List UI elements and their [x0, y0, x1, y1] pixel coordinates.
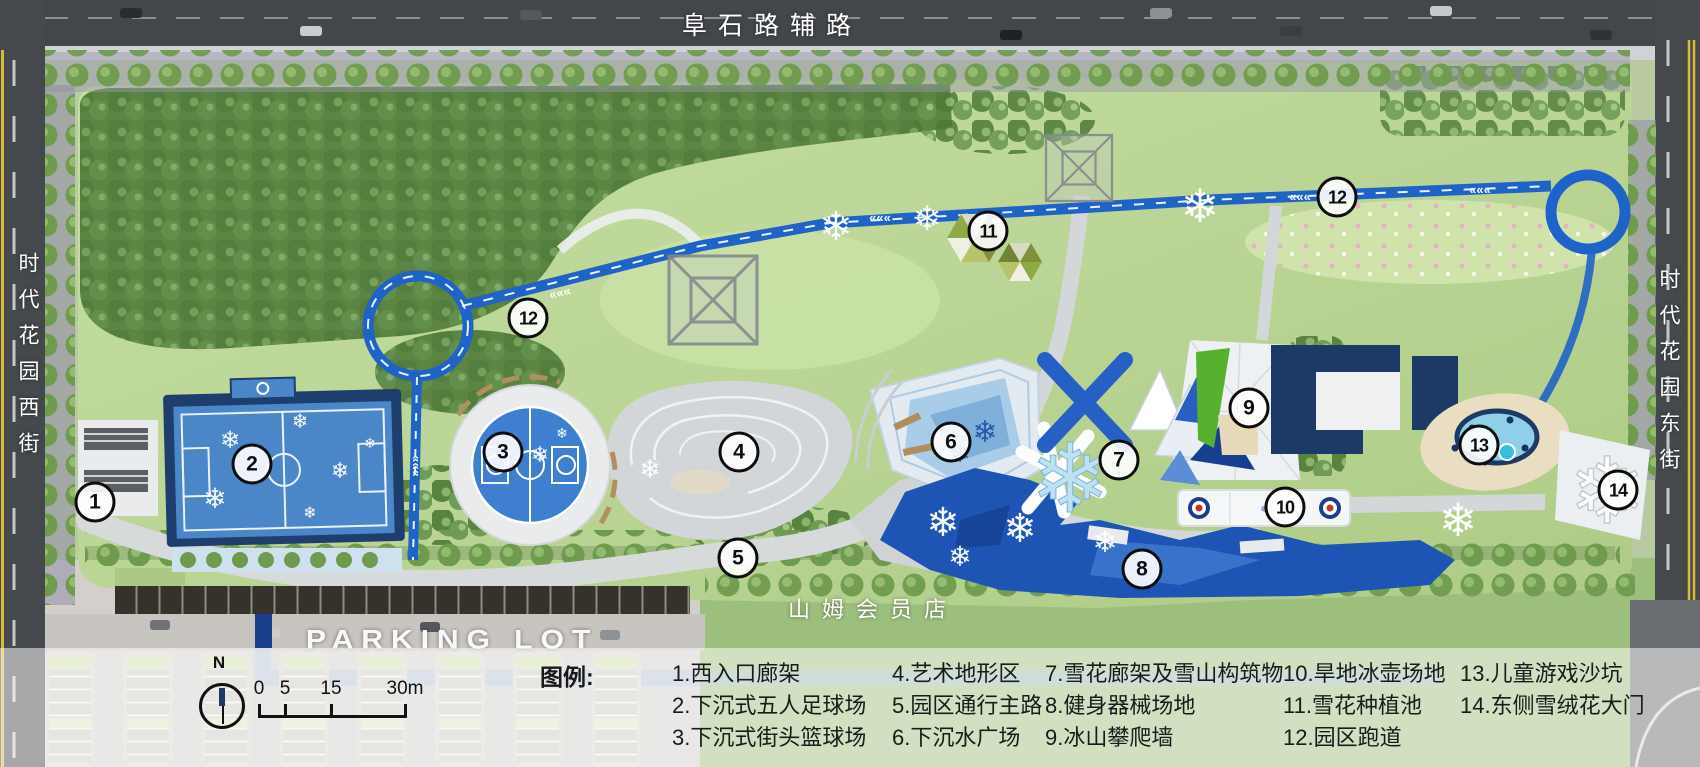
legend-item-1: 1.西入口廊架: [672, 658, 866, 690]
scale-tick-label-15: 15: [320, 678, 341, 700]
svg-text:«««: «««: [1289, 189, 1311, 204]
north-arrow-icon: [199, 683, 245, 729]
svg-text:❄: ❄: [913, 200, 942, 238]
legend-column-3: 7.雪花廊架及雪山构筑物8.健身器械场地9.冰山攀爬墙: [1045, 658, 1283, 754]
legend-item-14: 14.东侧雪绒花大门: [1460, 690, 1645, 722]
svg-text:❄: ❄: [1260, 504, 1268, 514]
svg-text:❄: ❄: [1181, 180, 1220, 232]
legend-item-13: 13.儿童游戏沙坑: [1460, 658, 1645, 690]
svg-text:❄: ❄: [364, 435, 376, 451]
svg-text:❄: ❄: [220, 427, 240, 454]
svg-text:❄: ❄: [926, 501, 960, 545]
scale-tick: [284, 704, 287, 718]
svg-text:❄: ❄: [639, 454, 661, 484]
svg-text:«««: «««: [409, 455, 424, 477]
legend-item-11: 11.雪花种植池: [1283, 690, 1446, 722]
legend-title: 图例:: [540, 658, 594, 692]
scale-tick-label-0: 0: [254, 678, 265, 700]
legend-item-12: 12.园区跑道: [1283, 722, 1446, 754]
legend-panel: 图例: 1.西入口廊架2.下沉式五人足球场3.下沉式街头篮球场4.艺术地形区5.…: [0, 648, 1700, 767]
svg-text:«««: «««: [869, 210, 891, 225]
legend-item-8: 8.健身器械场地: [1045, 690, 1283, 722]
scale-tick: [258, 704, 261, 718]
svg-text:❄: ❄: [972, 416, 997, 449]
legend-item-7: 7.雪花廊架及雪山构筑物: [1045, 658, 1283, 690]
svg-text:❄: ❄: [556, 425, 568, 441]
north-road-label: 阜石路辅路: [682, 6, 862, 42]
svg-text:❄: ❄: [303, 505, 316, 522]
svg-text:❄: ❄: [1439, 494, 1478, 546]
legend-column-2: 4.艺术地形区5.园区通行主路6.下沉水广场: [892, 658, 1042, 754]
legend-item-3: 3.下沉式街头篮球场: [672, 722, 866, 754]
north-label: N: [213, 653, 225, 673]
svg-text:❄: ❄: [948, 541, 971, 572]
scale-tick-label-5: 5: [280, 678, 291, 700]
legend-item-9: 9.冰山攀爬墙: [1045, 722, 1283, 754]
legend-item-2: 2.下沉式五人足球场: [672, 690, 866, 722]
store-label: 山姆会员店: [788, 592, 958, 624]
legend-item-10: 10.旱地冰壶场地: [1283, 658, 1446, 690]
svg-text:«««: «««: [1469, 182, 1491, 197]
park-master-plan: ❄ ❄ ❄: [0, 0, 1700, 767]
west-street-label: 时代花园西街: [12, 252, 42, 468]
svg-text:❄: ❄: [292, 411, 309, 433]
svg-text:❄: ❄: [531, 442, 549, 467]
svg-text:❄: ❄: [331, 458, 349, 483]
svg-text:❄: ❄: [1568, 441, 1645, 543]
legend-column-1: 1.西入口廊架2.下沉式五人足球场3.下沉式街头篮球场: [672, 658, 866, 754]
legend-column-4: 10.旱地冰壶场地11.雪花种植池12.园区跑道: [1283, 658, 1446, 754]
svg-text:❄: ❄: [203, 483, 226, 514]
legend-column-5: 13.儿童游戏沙坑14.东侧雪绒花大门: [1460, 658, 1645, 722]
svg-text:❄: ❄: [819, 205, 853, 249]
svg-text:❄: ❄: [950, 441, 970, 468]
svg-text:❄: ❄: [1092, 526, 1117, 559]
scale-tick: [330, 704, 333, 718]
scale-tick-label-30m: 30m: [387, 678, 424, 700]
legend-item-6: 6.下沉水广场: [892, 722, 1042, 754]
east-street-label: 时代花园东街: [1653, 268, 1683, 484]
legend-item-4: 4.艺术地形区: [892, 658, 1042, 690]
legend-item-5: 5.园区通行主路: [892, 690, 1042, 722]
scale-tick: [404, 704, 407, 718]
scale-bar: 051530m: [258, 688, 408, 718]
svg-text:❄: ❄: [1003, 507, 1037, 551]
